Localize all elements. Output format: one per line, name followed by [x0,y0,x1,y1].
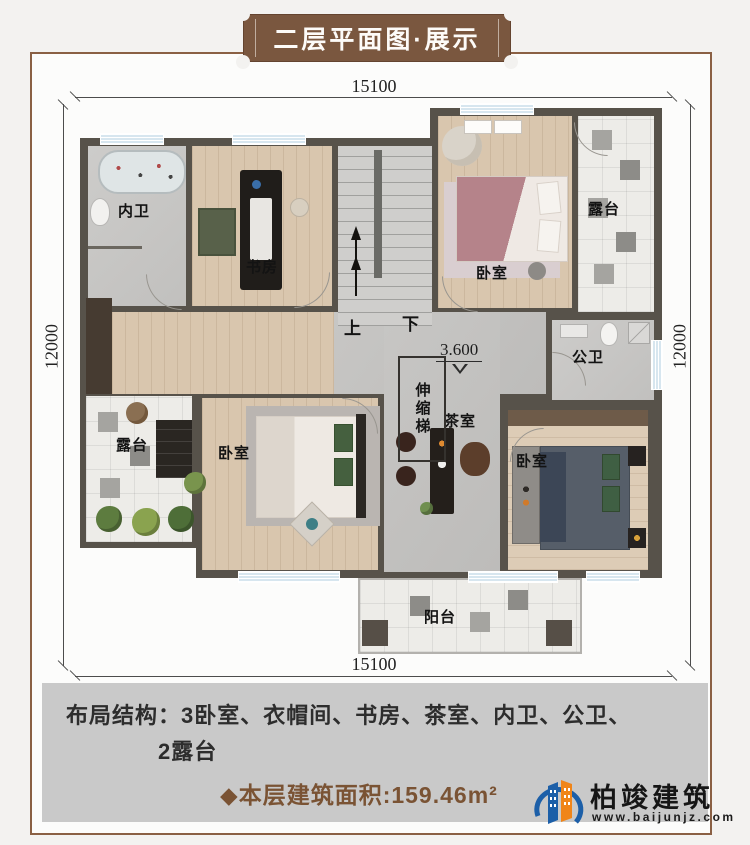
layout-structure-line2: 2露台 [158,734,217,766]
terrace-tile [98,412,118,432]
banner-notch [236,7,250,21]
room-label-study: 书房 [246,256,278,277]
room-label-tea-room: 茶室 [444,410,476,431]
window [586,571,640,583]
desk-accessory [252,180,261,189]
terrace-bench [156,420,192,478]
nightstand [628,446,646,466]
plant [420,502,433,515]
study-rug [198,208,236,256]
window [100,133,164,145]
stair-rail [374,150,382,278]
balcony-tile [470,612,490,632]
retractable-ladder-label: 伸缩梯 [412,382,433,436]
retractable-ladder-box: 伸缩梯 [398,356,446,462]
room-label-inner-bath: 内卫 [118,200,150,221]
banner-groove [498,19,499,57]
room-label-terrace-left: 露台 [116,434,148,455]
bathtub [98,150,186,194]
title-banner: 二层平面图·展示 [243,14,511,62]
balcony-door-window [468,571,558,583]
terrace-table [126,402,148,424]
terrace-tile [620,160,640,180]
nightstand [628,528,646,548]
pillow [602,486,620,512]
stair-arrow-icon [351,226,361,240]
stair-arrow-icon [351,256,361,270]
floor-hallway [112,312,334,394]
pillow [537,219,562,253]
elevation-marker-icon-inner [455,364,465,371]
terrace-tile [616,232,636,252]
dim-line-top [75,97,672,98]
floor-area-text: ◆本层建筑面积:159.46m² [220,776,498,810]
company-website: www.baijunjz.com [592,810,736,824]
pillow [602,454,620,480]
dim-line-bottom [75,676,672,677]
window [460,103,534,115]
window-bench [464,120,492,134]
balcony-corner-block [362,620,388,646]
balcony-corner-block [546,620,572,646]
plant [96,506,122,532]
dim-left-value: 12000 [42,319,63,375]
page-title: 二层平面图·展示 [273,20,480,56]
plant [184,472,206,494]
window [232,133,306,145]
banner-notch [504,7,518,21]
company-logo: 柏竣建筑 www.baijunjz.com [532,770,712,840]
toilet [90,198,110,226]
dim-line-right [690,104,691,666]
stairs-up-label: 上 [344,314,362,339]
pillow [334,458,353,486]
plant [132,508,160,536]
banner-groove [255,19,256,57]
room-label-terrace-right: 露台 [588,198,620,219]
room-label-bedroom-right: 卧室 [516,450,548,471]
banner-notch [236,55,250,69]
shower [628,322,650,344]
balcony-tile [508,590,528,610]
plan-outline-notch-bottom [78,548,196,580]
terrace-tile [594,264,614,284]
window-bench [494,120,522,134]
layout-structure-label: 布局结构： [66,703,181,728]
tea-chair [460,442,490,476]
toilet [600,322,618,346]
dim-bottom-value: 15100 [346,654,402,675]
plant [168,506,194,532]
ottoman-cushion [306,518,318,530]
sink [560,324,588,338]
layout-structure-line1: 布局结构：3卧室、衣帽间、书房、茶室、内卫、公卫、 [66,698,631,730]
window [651,340,663,390]
bath-partition [88,246,142,249]
elevation-value: 3.600 [436,340,482,362]
study-chair [290,198,309,217]
stool [528,262,546,280]
room-label-bedroom-left: 卧室 [218,442,250,463]
pillow [536,181,561,215]
stairs-down-label: 下 [402,310,420,335]
banner-notch [504,55,518,69]
study-desk-mat [250,198,272,260]
cloakroom-wardrobe [86,298,112,394]
room-label-public-bath: 公卫 [572,346,604,367]
layout-structure-items1: 3卧室、衣帽间、书房、茶室、内卫、公卫、 [181,703,631,728]
dim-line-left [63,104,64,666]
logo-building-icon [532,772,586,832]
dim-top-value: 15100 [346,76,402,97]
tea-stool [396,466,416,486]
window [238,571,340,583]
terrace-tile [100,478,120,498]
dim-right-value: 12000 [670,319,691,375]
bedroom-right-wardrobe [508,410,648,426]
room-label-bedroom-top: 卧室 [476,262,508,283]
room-label-balcony: 阳台 [424,606,456,627]
